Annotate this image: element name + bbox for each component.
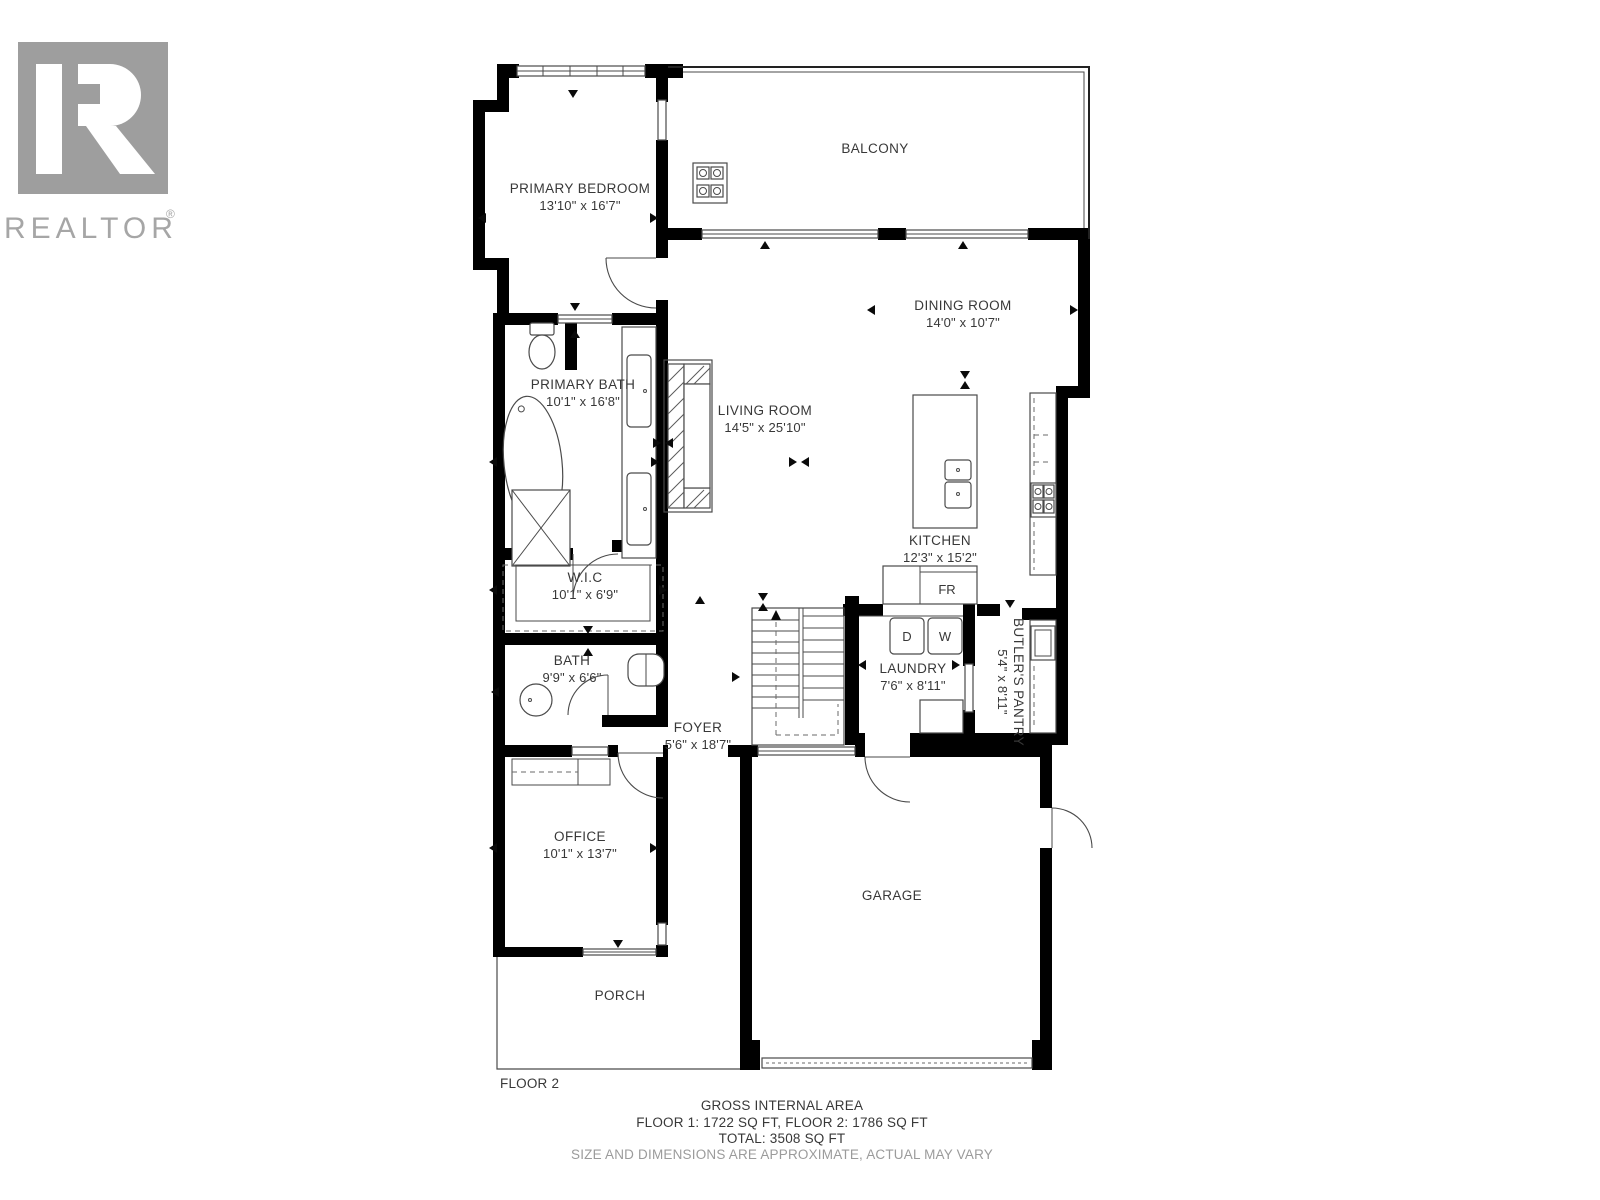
shower-icon	[512, 490, 570, 566]
footer-total: TOTAL: 3508 SQ FT	[719, 1131, 846, 1146]
garage-entry-door-arc	[865, 757, 910, 802]
svg-text:13'10" x 16'7": 13'10" x 16'7"	[539, 198, 621, 213]
room-label-garage: GARAGE	[862, 888, 922, 903]
svg-text:OFFICE: OFFICE	[554, 829, 606, 844]
kitchen-counter-right	[1030, 393, 1056, 575]
room-label-kitchen: KITCHEN 12'3" x 15'2"	[903, 533, 977, 565]
floorplan-page: REALTOR ®	[0, 0, 1600, 1200]
realtor-logo-r-stem	[36, 64, 62, 174]
svg-text:10'1" x 16'8": 10'1" x 16'8"	[546, 394, 620, 409]
garage-side-door-arc	[1052, 808, 1092, 848]
double-vanity-icon	[622, 327, 656, 558]
floorplan-canvas: REALTOR ®	[0, 0, 1600, 1200]
dryer-label: D	[902, 629, 911, 644]
sink-icon	[520, 684, 552, 716]
room-label-living-room: LIVING ROOM 14'5" x 25'10"	[718, 403, 812, 435]
footer-floors: FLOOR 1: 1722 SQ FT, FLOOR 2: 1786 SQ FT	[636, 1115, 928, 1130]
footer: GROSS INTERNAL AREA FLOOR 1: 1722 SQ FT,…	[571, 1098, 993, 1162]
office-closet	[512, 759, 610, 785]
svg-text:FOYER: FOYER	[674, 720, 723, 735]
svg-text:BATH: BATH	[554, 653, 591, 668]
hall-bath-fixtures	[520, 654, 664, 716]
porch-outline	[497, 957, 740, 1069]
room-label-dining-room: DINING ROOM 14'0" x 10'7"	[914, 298, 1011, 330]
room-label-wic: W.I.C 10'1" x 6'9"	[552, 570, 619, 602]
svg-text:W.I.C: W.I.C	[568, 570, 603, 585]
footer-disclaimer: SIZE AND DIMENSIONS ARE APPROXIMATE, ACT…	[571, 1147, 993, 1162]
walls	[473, 64, 1090, 1070]
svg-text:12'3" x 15'2": 12'3" x 15'2"	[903, 550, 977, 565]
staircase	[752, 608, 844, 745]
fridge-label: FR	[938, 582, 955, 597]
pantry-door-leaf	[965, 664, 973, 712]
toilet-icon	[529, 323, 555, 369]
registered-mark: ®	[166, 207, 175, 221]
svg-text:DINING ROOM: DINING ROOM	[914, 298, 1011, 313]
svg-text:KITCHEN: KITCHEN	[909, 533, 971, 548]
svg-text:BUTLER'S PANTRY: BUTLER'S PANTRY	[1011, 618, 1026, 746]
svg-text:10'1" x 6'9": 10'1" x 6'9"	[552, 587, 619, 602]
floor-label: FLOOR 2	[500, 1076, 559, 1091]
room-label-primary-bath: PRIMARY BATH 10'1" x 16'8"	[531, 377, 636, 409]
room-label-porch: PORCH	[595, 988, 646, 1003]
svg-text:PRIMARY BEDROOM: PRIMARY BEDROOM	[510, 181, 651, 196]
pantry-counter	[1030, 620, 1056, 733]
svg-text:LAUNDRY: LAUNDRY	[879, 661, 946, 676]
garage-door	[762, 1058, 1032, 1068]
room-label-foyer: FOYER 5'6" x 18'7"	[665, 720, 732, 752]
room-label-laundry: LAUNDRY 7'6" x 8'11"	[879, 661, 946, 693]
bedroom-door-arc	[606, 258, 656, 308]
svg-text:5'6" x 18'7": 5'6" x 18'7"	[665, 737, 732, 752]
svg-text:14'5" x 25'10": 14'5" x 25'10"	[724, 420, 806, 435]
svg-text:9'9" x 6'6": 9'9" x 6'6"	[542, 670, 601, 685]
svg-text:LIVING ROOM: LIVING ROOM	[718, 403, 812, 418]
svg-text:7'6" x 8'11": 7'6" x 8'11"	[880, 678, 946, 693]
stove-icon	[1031, 483, 1056, 517]
fireplace	[664, 360, 712, 512]
room-label-bath: BATH 9'9" x 6'6"	[542, 653, 601, 685]
realtor-logo: REALTOR ®	[4, 42, 178, 245]
svg-text:5'4" x 8'11": 5'4" x 8'11"	[995, 649, 1010, 715]
bbq-grill-icon	[693, 163, 727, 203]
room-label-balcony: BALCONY	[841, 141, 908, 156]
fridge-icon	[883, 566, 977, 604]
svg-text:14'0" x 10'7": 14'0" x 10'7"	[926, 315, 1000, 330]
svg-text:10'1" x 13'7": 10'1" x 13'7"	[543, 846, 617, 861]
kitchen-island	[913, 395, 977, 528]
svg-text:PRIMARY BATH: PRIMARY BATH	[531, 377, 636, 392]
room-label-office: OFFICE 10'1" x 13'7"	[543, 829, 617, 861]
laundry-cabinet	[920, 700, 963, 733]
room-label-primary-bedroom: PRIMARY BEDROOM 13'10" x 16'7"	[510, 181, 651, 213]
realtor-wordmark: REALTOR	[4, 212, 178, 245]
washer-label: W	[939, 629, 952, 644]
footer-title: GROSS INTERNAL AREA	[701, 1098, 863, 1113]
realtor-logo-r-counter	[78, 84, 100, 104]
room-label-butlers-pantry: BUTLER'S PANTRY 5'4" x 8'11"	[995, 618, 1026, 746]
